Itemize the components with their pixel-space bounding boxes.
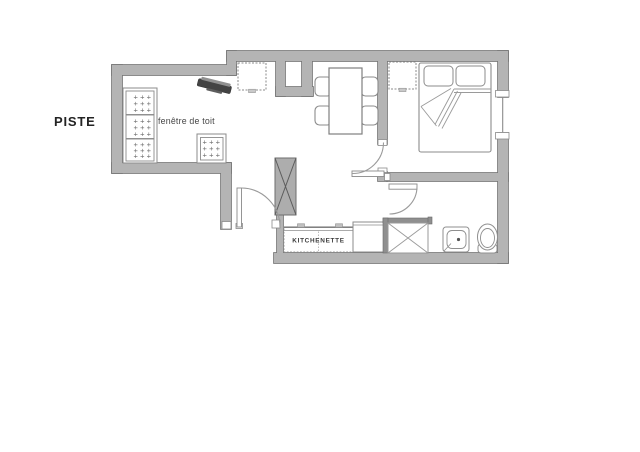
jamb <box>378 140 387 146</box>
window-sill <box>496 91 510 98</box>
door-leaf <box>389 184 417 189</box>
jamb <box>385 174 391 181</box>
sofa-cushion-marks: +++ +++ +++ +++ +++ +++ +++ +++ +++ <box>134 93 154 161</box>
tv <box>196 76 232 96</box>
bedroom-door <box>352 143 384 177</box>
chair <box>361 106 378 125</box>
washbasin <box>443 227 469 252</box>
cushion-marks-row: +++ <box>134 106 154 115</box>
dining-table <box>329 68 362 134</box>
roof-window-niche <box>238 63 266 93</box>
toilet <box>478 224 498 253</box>
pillow <box>456 66 485 86</box>
door-leaf <box>237 188 242 227</box>
kitchenette-label: KITCHENETTE <box>292 238 344 245</box>
cushion-marks-row: +++ <box>203 150 223 159</box>
fridge-unit <box>353 222 384 252</box>
piste-label: PISTE <box>54 114 96 129</box>
floor-plan-page: +++ +++ +++ +++ +++ +++ +++ +++ +++ +++ … <box>0 0 640 452</box>
chair <box>361 77 378 96</box>
bed <box>419 63 491 152</box>
shower <box>383 217 432 253</box>
pillow <box>424 66 453 86</box>
floor-plan-drawing: +++ +++ +++ +++ +++ +++ +++ +++ +++ +++ … <box>0 0 640 452</box>
hatched-column <box>275 158 296 215</box>
roof-window-label: fenêtre de toit <box>158 116 215 126</box>
roof-window-bedroom <box>389 62 416 92</box>
ottoman-cushion-marks: +++ +++ +++ <box>203 138 223 160</box>
jamb <box>272 220 280 228</box>
window-sill <box>496 133 510 140</box>
jamb <box>222 222 231 230</box>
kitchenette-counter: KITCHENETTE <box>284 224 353 252</box>
door-swing-arc <box>390 187 418 215</box>
bathroom-door <box>389 184 417 214</box>
cushion-marks-row: +++ <box>134 152 154 161</box>
cushion-marks-row: +++ <box>134 129 154 138</box>
